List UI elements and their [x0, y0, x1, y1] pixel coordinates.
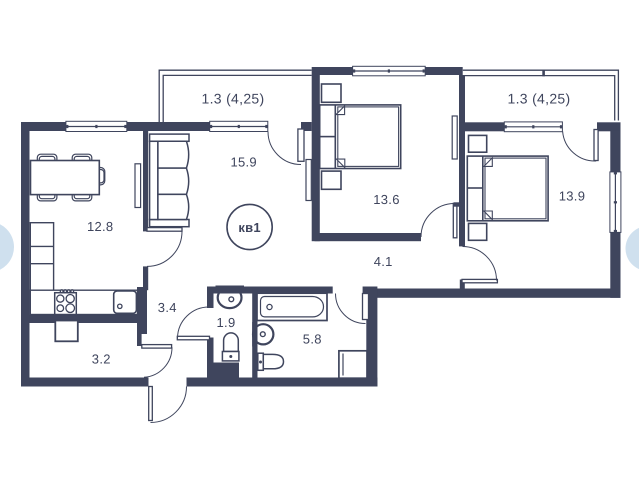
svg-text:13.9: 13.9: [559, 189, 586, 204]
svg-text:4.1: 4.1: [374, 254, 393, 269]
svg-text:3.2: 3.2: [92, 351, 111, 366]
svg-text:3.4: 3.4: [158, 300, 177, 315]
svg-text:кв1: кв1: [238, 220, 260, 235]
svg-text:5.8: 5.8: [303, 331, 322, 346]
svg-text:15.9: 15.9: [230, 154, 257, 169]
svg-text:1.3 (4,25): 1.3 (4,25): [202, 91, 265, 107]
svg-text:1.3 (4,25): 1.3 (4,25): [508, 90, 571, 106]
svg-text:1.9: 1.9: [217, 315, 236, 330]
svg-text:12.8: 12.8: [87, 219, 114, 234]
svg-text:13.6: 13.6: [373, 192, 400, 207]
